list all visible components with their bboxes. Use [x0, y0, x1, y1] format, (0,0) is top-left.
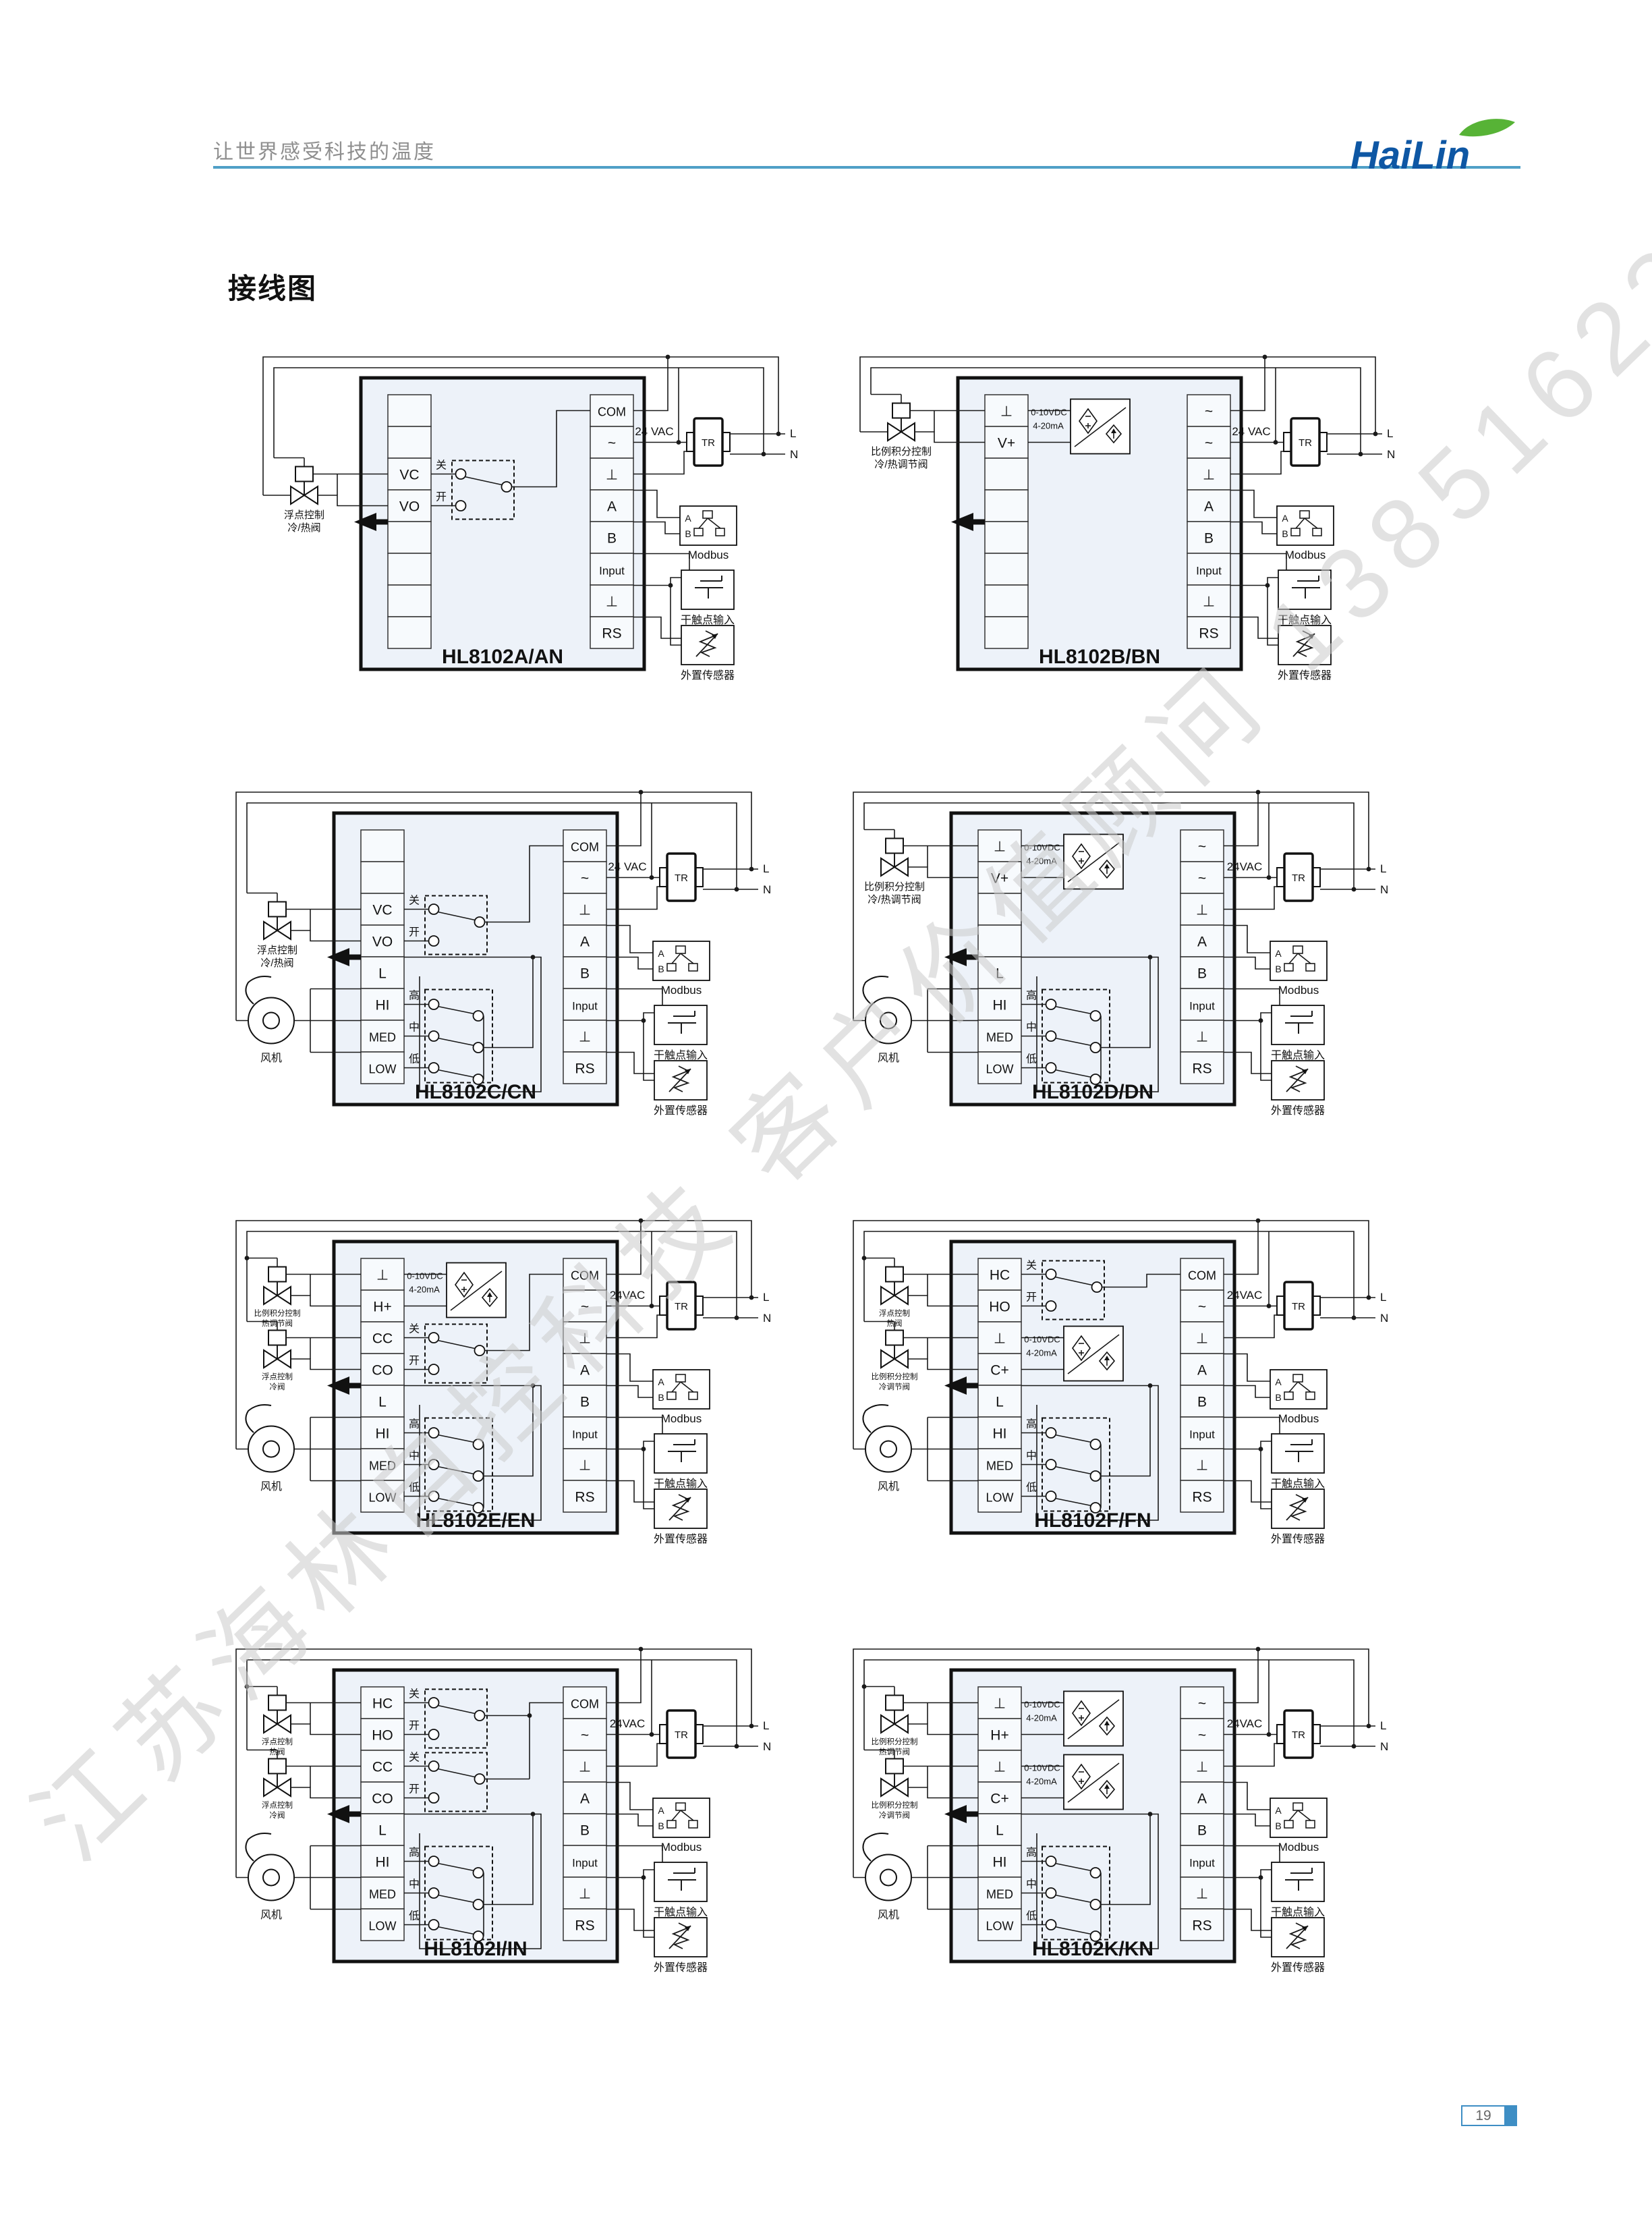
modbus-label: Modbus [661, 1412, 702, 1425]
dry-contact-label: 干触点输入 [1271, 1478, 1325, 1490]
transformer-label: TR [675, 1729, 688, 1741]
valve-icon [881, 858, 894, 876]
speed-label: 高 [1026, 1418, 1037, 1430]
terminal-label: COM [1188, 1269, 1216, 1283]
transformer-label: TR [1292, 1729, 1305, 1741]
modbus-a-label: A [1282, 513, 1288, 524]
terminal-label: Input [1189, 1428, 1215, 1441]
terminal-label: Input [572, 1857, 598, 1870]
terminal-label: A [1204, 499, 1214, 515]
terminal-label: ⊥ [1203, 468, 1215, 483]
valve-icon [901, 423, 915, 441]
valve-actuator [268, 1696, 286, 1710]
terminal-label: LOW [368, 1920, 396, 1933]
left-arrow-icon [349, 955, 361, 960]
valve-label: 比例积分控制 [872, 1737, 918, 1746]
valve-actuator [295, 467, 313, 482]
valve-label: 冷/热阀 [287, 522, 320, 534]
valve-label: 浮点控制 [257, 945, 297, 956]
modbus-label: Modbus [1278, 1412, 1319, 1425]
fan-label: 风机 [260, 1480, 282, 1493]
diagram-title: HL8102F/FN [1034, 1509, 1151, 1532]
terminal-label: ~ [1198, 1696, 1206, 1712]
terminal-label: ⊥ [606, 468, 618, 483]
valve-label: 浮点控制 [262, 1800, 293, 1810]
speed-label: 低 [1026, 1482, 1037, 1494]
terminal-label: H+ [990, 1728, 1008, 1744]
ext-sensor-label: 外置传感器 [1271, 1961, 1325, 1974]
valve-actuator [886, 1759, 903, 1774]
wire [1261, 1878, 1272, 1938]
modbus-a-label: A [1275, 948, 1282, 959]
terminal-label: HI [993, 1426, 1007, 1442]
terminal-label: ⊥ [579, 1030, 591, 1045]
terminal-label: VO [399, 499, 420, 515]
terminal-label: A [580, 1791, 590, 1807]
wire [671, 586, 681, 646]
modbus-network-icon [694, 528, 703, 536]
terminal-label: MED [369, 1031, 396, 1045]
valve-label: 热调节阀 [879, 1747, 910, 1756]
terminal-label: L [996, 966, 1004, 982]
valve-label: 比例积分控制 [254, 1308, 301, 1318]
modbus-label: Modbus [1278, 984, 1319, 997]
valve-icon [277, 1287, 291, 1304]
switch-contact [502, 482, 512, 492]
terminal-label: ⊥ [994, 1696, 1006, 1712]
terminal-label: LOW [368, 1063, 396, 1076]
valve-actuator [886, 1267, 903, 1282]
wiring-diagram-hl8102f-fn: HCCOMHO~⊥⊥C+ALBHIInputMED⊥LOWRS24VACTRLN… [840, 1211, 1400, 1549]
converter-range-label: 4-20mA [1033, 421, 1064, 431]
valve-icon [277, 922, 291, 939]
terminal-cell [388, 395, 431, 426]
modbus-network-icon [676, 946, 685, 953]
switch-contact [1046, 1856, 1056, 1866]
terminal-cell [978, 925, 1021, 957]
terminal-label: ~ [1198, 1728, 1206, 1744]
dry-contact-label: 干触点输入 [1271, 1049, 1325, 1061]
terminal-label: ⊥ [1196, 903, 1208, 918]
speed-label: 中 [1026, 1450, 1037, 1462]
dry-contact-label: 干触点输入 [1278, 614, 1332, 626]
terminal-label: A [1197, 1791, 1207, 1807]
terminal-label: VC [372, 903, 392, 918]
terminal-label: Input [572, 1428, 598, 1441]
modbus-network-icon [1293, 1803, 1303, 1810]
junction-dot [1148, 1812, 1153, 1816]
terminal-label: HC [372, 1696, 393, 1712]
diagram-title: HL8102K/KN [1032, 1938, 1153, 1960]
converter-range-label: 0-10VDC [1024, 1763, 1060, 1773]
modbus-b-label: B [658, 1392, 664, 1403]
terminal-cell [985, 458, 1028, 490]
line-l-label: L [763, 1719, 769, 1732]
terminal-label: LOW [368, 1491, 396, 1505]
valve-label: 冷/热调节阀 [867, 894, 921, 906]
switch-contact [1046, 1269, 1056, 1279]
terminal-label: ⊥ [376, 1268, 389, 1283]
valve-actuator [268, 1331, 286, 1345]
diagram-title: HL8102D/DN [1032, 1081, 1153, 1103]
speed-label: 中 [409, 1879, 420, 1891]
switch-contact [1091, 1868, 1101, 1878]
terminal-label: B [607, 531, 617, 547]
terminal-label: B [1197, 1823, 1207, 1839]
vac-label: 24 VAC [1232, 425, 1270, 438]
speed-label: 低 [409, 1053, 420, 1065]
terminal-label: ⊥ [994, 1760, 1006, 1775]
terminal-label: B [1197, 966, 1207, 982]
left-arrow-icon [349, 1812, 361, 1817]
transformer-label: TR [1292, 872, 1305, 884]
modbus-label: Modbus [661, 1841, 702, 1854]
converter-range-label: 0-10VDC [1024, 1700, 1060, 1710]
valve-icon [277, 1715, 291, 1733]
terminal-label: ⊥ [1196, 1887, 1208, 1902]
terminal-label: HI [993, 1855, 1007, 1870]
speed-label: 中 [409, 1450, 420, 1462]
valve-icon [277, 1350, 291, 1368]
fan-icon [880, 1870, 896, 1886]
terminal-label: ~ [1198, 1300, 1206, 1315]
speed-label: 高 [1026, 1847, 1037, 1859]
modbus-b-label: B [1282, 528, 1288, 539]
valve-actuator [268, 902, 286, 917]
terminal-label: VO [372, 935, 393, 950]
modbus-network-icon [1284, 1820, 1293, 1828]
fan-icon [880, 1013, 896, 1029]
valve-icon [291, 486, 304, 504]
fan-label: 风机 [878, 1052, 899, 1064]
terminal-label: B [580, 1823, 590, 1839]
terminal-label: L [996, 1823, 1004, 1839]
terminal-label: A [607, 499, 617, 515]
line-n-label: N [763, 1312, 771, 1325]
terminal-label: ⊥ [1000, 404, 1013, 420]
modbus-network-icon [716, 528, 724, 536]
terminal-cell [388, 522, 431, 553]
converter-range-label: 4-20mA [1026, 1777, 1057, 1787]
modbus-network-icon [1284, 1392, 1293, 1399]
vac-label: 24VAC [610, 1717, 646, 1730]
wiring-diagram-hl8102e-en: ⊥COMH+~CC⊥COALBHIInputMED⊥LOWRS24VACTRLN… [223, 1211, 782, 1549]
wire [1261, 1449, 1272, 1509]
terminal-label: ~ [1205, 436, 1213, 451]
junction-dot [531, 1812, 536, 1816]
switch-contact [429, 1698, 439, 1708]
terminal-label: Input [599, 565, 625, 578]
terminal-label: VC [399, 468, 419, 483]
valve-icon [881, 1350, 894, 1368]
valve-label: 冷/热调节阀 [874, 459, 928, 470]
speed-label: 低 [409, 1482, 420, 1494]
wiring-diagram-hl8102k-kn: ⊥~H+~⊥⊥C+ALBHIInputMED⊥LOWRS24VACTRLNABM… [840, 1640, 1400, 1977]
speed-label: 中 [1026, 1879, 1037, 1891]
valve-label: 冷/热阀 [260, 957, 293, 969]
terminal-label: RS [1192, 1918, 1212, 1934]
fan-label: 风机 [878, 1480, 899, 1493]
modbus-network-icon [676, 1803, 685, 1810]
terminal-cell [985, 522, 1028, 553]
dry-contact-label: 干触点输入 [681, 614, 735, 626]
vac-label: 24 VAC [608, 860, 646, 873]
switch-contact [474, 1011, 484, 1021]
line-n-label: N [763, 883, 771, 896]
junction-dot [1148, 955, 1153, 959]
modbus-a-label: A [685, 513, 691, 524]
switch-contact [474, 1439, 484, 1449]
terminal-label: A [1197, 1363, 1207, 1379]
switch-open-label: 开 [409, 1721, 420, 1732]
terminal-cell [985, 585, 1028, 617]
terminal-label: ⊥ [579, 1887, 591, 1902]
terminal-label: ⊥ [994, 1331, 1006, 1347]
switch-contact [1091, 1899, 1101, 1910]
switch-contact [429, 936, 439, 946]
terminal-label: ~ [1205, 404, 1213, 420]
valve-label: 冷调节阀 [879, 1810, 910, 1820]
wiring-diagram-hl8102d-dn: ⊥~V+~⊥ALBHIInputMED⊥LOWRS24VACTRLNABModb… [840, 783, 1400, 1120]
switch-open-label: 开 [409, 1784, 420, 1796]
switch-contact [474, 1471, 484, 1481]
line-l-label: L [1380, 1719, 1386, 1732]
switch-contact [429, 999, 439, 1009]
modbus-network-icon [689, 1392, 697, 1399]
vac-label: 24VAC [610, 1289, 646, 1302]
modbus-network-icon [1293, 946, 1303, 953]
terminal-label: ⊥ [579, 1458, 591, 1474]
terminal-label: L [378, 966, 387, 982]
switch-open-label: 开 [1026, 1292, 1037, 1304]
junction-dot [528, 1713, 532, 1718]
junction-dot [1256, 1219, 1261, 1223]
switch-open-label: 开 [409, 927, 420, 939]
switch-contact [474, 1042, 484, 1053]
left-arrow-icon [349, 1383, 361, 1389]
terminal-label: Input [1189, 1000, 1215, 1013]
terminal-label: L [996, 1395, 1004, 1410]
modbus-network-icon [1313, 528, 1321, 536]
valve-icon [888, 423, 901, 441]
switch-contact [456, 501, 466, 511]
terminal-label: MED [986, 1459, 1013, 1473]
valve-icon [894, 1287, 908, 1304]
line-l-label: L [763, 1291, 769, 1304]
valve-icon [264, 922, 277, 939]
terminal-label: CO [372, 1791, 393, 1807]
terminal-label: ~ [581, 1300, 589, 1315]
terminal-cell [978, 893, 1021, 925]
terminal-label: COM [598, 406, 626, 419]
diagram-title: HL8102C/CN [415, 1081, 536, 1103]
terminal-label: MED [986, 1888, 1013, 1901]
diagram-title: HL8102I/IN [424, 1938, 527, 1960]
junction-dot [639, 1647, 644, 1652]
terminal-cell [388, 553, 431, 585]
page-number-value: 19 [1461, 2105, 1506, 2126]
speed-label: 高 [409, 1418, 420, 1430]
terminal-label: C+ [990, 1791, 1008, 1807]
terminal-label: ⊥ [1196, 1458, 1208, 1474]
converter-range-label: 4-20mA [1026, 1348, 1057, 1358]
switch-contact [429, 1428, 439, 1438]
fan-icon [263, 1013, 279, 1029]
terminal-label: HI [376, 1855, 390, 1870]
wiring-diagram-hl8102a-an: COM~VC⊥VOABInput⊥RS24 VACTRLNABModbus干触点… [250, 347, 809, 685]
wire [644, 1021, 654, 1081]
junction-dot [1148, 1383, 1153, 1388]
switch-contact [429, 904, 439, 914]
modbus-b-label: B [685, 528, 691, 539]
modbus-b-label: B [1275, 1820, 1281, 1831]
diagram-title: HL8102E/EN [416, 1509, 536, 1532]
switch-close-label: 关 [409, 1323, 420, 1335]
switch-contact [474, 1899, 484, 1910]
junction-dot [666, 355, 671, 360]
modbus-a-label: A [658, 948, 664, 959]
line-l-label: L [1380, 1291, 1386, 1304]
terminal-label: H+ [373, 1300, 391, 1315]
ext-sensor-label: 外置传感器 [654, 1105, 708, 1117]
switch-close-label: 关 [409, 1752, 420, 1764]
switch-contact [1046, 1063, 1056, 1073]
fan-label: 风机 [260, 1909, 282, 1921]
terminal-label: ⊥ [579, 1760, 591, 1775]
valve-label: 比例积分控制 [871, 446, 932, 457]
terminal-label: MED [369, 1459, 396, 1473]
junction-dot [1256, 1647, 1261, 1652]
switch-contact [429, 1459, 439, 1470]
line-l-label: L [790, 427, 796, 440]
terminal-label: ⊥ [1196, 1331, 1208, 1347]
fan-icon [263, 1870, 279, 1886]
terminal-cell [985, 490, 1028, 522]
switch-contact [1091, 1042, 1101, 1053]
valve-label: 比例积分控制 [872, 1800, 918, 1810]
switch-contact [1091, 1439, 1101, 1449]
switch-contact [475, 1774, 485, 1784]
terminal-label: LOW [986, 1063, 1013, 1076]
switch-contact [429, 1793, 439, 1803]
switch-contact [475, 917, 485, 927]
switch-contact [1046, 1888, 1056, 1898]
modbus-network-icon [703, 511, 712, 518]
terminal-label: HI [376, 998, 390, 1013]
terminal-label: MED [986, 1031, 1013, 1045]
terminal-label: V+ [991, 871, 1008, 887]
terminal-label: L [378, 1395, 387, 1410]
valve-icon [264, 1350, 277, 1368]
switch-contact [1091, 1011, 1101, 1021]
modbus-network-icon [667, 964, 676, 971]
valve-icon [264, 1715, 277, 1733]
valve-label: 冷阀 [270, 1382, 285, 1391]
modbus-a-label: A [1275, 1805, 1282, 1816]
modbus-network-icon [689, 1820, 697, 1828]
dry-contact-label: 干触点输入 [1271, 1906, 1325, 1918]
modbus-network-icon [1306, 1392, 1315, 1399]
terminal-label: CO [372, 1363, 393, 1379]
converter-range-label: 0-10VDC [1024, 1335, 1060, 1345]
speed-label: 高 [1026, 990, 1037, 1002]
terminal-label: RS [602, 626, 621, 642]
terminal-label: LOW [986, 1920, 1013, 1933]
terminal-label: ⊥ [1196, 1760, 1208, 1775]
valve-actuator [886, 1331, 903, 1345]
valve-icon [264, 1779, 277, 1796]
junction-dot [862, 1684, 867, 1689]
vac-label: 24VAC [1227, 1289, 1263, 1302]
wire [644, 1449, 654, 1509]
terminal-label: RS [575, 1490, 594, 1505]
converter-range-label: 0-10VDC [407, 1271, 443, 1281]
modbus-network-icon [667, 1820, 676, 1828]
terminal-label: LOW [986, 1491, 1013, 1505]
valve-actuator [268, 1759, 286, 1774]
switch-contact [1046, 1491, 1056, 1501]
terminal-cell [361, 862, 404, 893]
line-n-label: N [1380, 883, 1388, 896]
terminal-cell [985, 617, 1028, 648]
switch-close-label: 关 [409, 1688, 420, 1700]
vac-label: 24VAC [1227, 860, 1263, 873]
fan-label: 风机 [878, 1909, 899, 1921]
switch-contact [1091, 1471, 1101, 1481]
junction-dot [531, 955, 536, 959]
valve-icon [264, 1287, 277, 1304]
valve-actuator [886, 839, 903, 854]
wiring-diagram-hl8102i-in: HCCOMHO~CC⊥COALBHIInputMED⊥LOWRS24VACTRL… [223, 1640, 782, 1977]
terminal-label: ⊥ [1203, 594, 1215, 610]
terminal-label: Input [1196, 565, 1222, 578]
terminal-cell [388, 426, 431, 458]
valve-icon [894, 858, 908, 876]
modbus-network-icon [1291, 528, 1300, 536]
switch-contact [429, 1761, 439, 1771]
speed-label: 高 [409, 1847, 420, 1859]
terminal-label: HI [993, 998, 1007, 1013]
terminal-label: ~ [608, 436, 616, 451]
modbus-b-label: B [658, 964, 664, 974]
left-arrow-icon [973, 520, 985, 525]
terminal-label: ⊥ [579, 903, 591, 918]
valve-label: 热调节阀 [262, 1318, 293, 1328]
vac-label: 24VAC [1227, 1717, 1263, 1730]
terminal-label: HI [376, 1426, 390, 1442]
modbus-a-label: A [658, 1805, 664, 1816]
junction-dot [245, 1684, 250, 1689]
wiring-diagram-hl8102b-bn: ⊥~V+~⊥ABInput⊥RS24 VACTRLNABModbus干触点输入外… [847, 347, 1406, 685]
speed-label: 中 [1026, 1022, 1037, 1034]
transformer-label: TR [1299, 437, 1312, 449]
line-n-label: N [763, 1740, 771, 1753]
terminal-label: HO [989, 1300, 1010, 1315]
ext-sensor-label: 外置传感器 [1271, 1533, 1325, 1545]
speed-label: 低 [409, 1910, 420, 1922]
switch-contact [429, 1031, 439, 1041]
terminal-label: L [378, 1823, 387, 1839]
valve-label: 浮点控制 [262, 1737, 293, 1746]
dry-contact-label: 干触点输入 [654, 1906, 708, 1918]
terminal-label: A [580, 935, 590, 950]
speed-label: 高 [409, 990, 420, 1002]
modbus-a-label: A [658, 1376, 664, 1387]
switch-contact [1046, 1031, 1056, 1041]
ext-sensor-label: 外置传感器 [1271, 1105, 1325, 1117]
terminal-label: COM [571, 1698, 599, 1711]
converter-range-label: 0-10VDC [1024, 843, 1060, 853]
